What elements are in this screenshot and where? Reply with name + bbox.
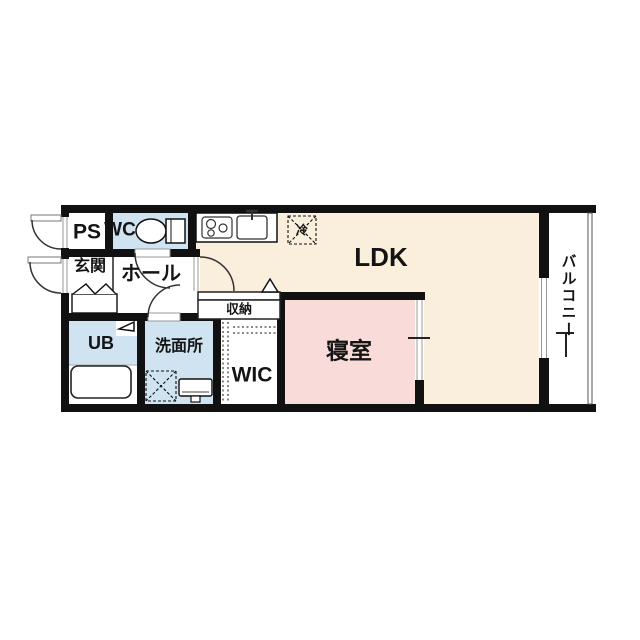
ldk-door-opening [192,257,200,291]
toilet-bowl [136,219,166,243]
room-label-ldk: LDK [354,244,407,270]
window-opening [539,278,549,358]
ps-door-opening [61,217,69,248]
room-label-unit-bath: UB [88,334,114,352]
room-label-entrance: 玄関 [74,259,106,275]
wall-segment [61,213,69,217]
washroom-door-opening [148,313,180,321]
sliding-door-opening [415,300,424,380]
room-label-wc: WC [104,221,136,240]
room-label-bedroom: 寝室 [326,340,372,363]
entrance-door-leaf [28,257,61,263]
wall-segment [539,358,549,404]
room-label-balcony: バルコニー [561,254,576,339]
wall-segment [61,205,596,213]
wall-segment [61,293,69,404]
wc-door-opening [135,249,170,257]
toilet-tank [166,219,185,243]
washbasin-top [179,379,212,396]
entrance-door-opening [61,259,69,293]
wall-segment [188,213,196,249]
wall-segment [137,313,145,404]
room-label-ps: PS [73,222,101,243]
wall-segment [415,380,424,404]
room-label-hall: ホール [121,264,181,284]
room-label-wic: WIC [232,365,273,386]
wall-segment [277,292,425,300]
wic-hanger-icon [223,322,276,402]
ps-door [31,215,69,249]
balcony-railing [588,213,592,404]
wall-segment [213,313,221,404]
wall-segment [192,249,200,257]
ps-door-arc [32,220,61,249]
room-label-storage: 収納 [226,303,252,316]
ps-door-leaf [31,215,61,221]
entrance-door [28,257,69,293]
washroom-door [148,285,180,321]
washroom-door-arc [148,285,180,317]
unit-bath-door [116,321,137,336]
room-label-washroom: 洗面所 [155,339,203,355]
floor-plan: PS WC 玄関 ホール UB 洗面所 収納 WIC 寝室 LDK バルコニー … [0,0,640,640]
wall-segment [539,205,549,278]
shoe-cabinet-top [73,284,116,294]
floor-plan-drawing [0,0,640,640]
shoe-cabinet-icon [72,284,117,313]
wall-segment [61,404,596,412]
washbasin-stand [191,396,200,402]
wall-segment [61,313,148,321]
ldk-area-south [424,292,539,404]
kitchen-counter [196,211,277,242]
storage-door-track [198,292,280,300]
entrance-door-arc [30,262,61,293]
wall-segment [61,249,135,257]
shoe-cabinet-body [72,294,117,313]
bathtub-icon [71,366,131,398]
refrigerator-label: 冷 [296,224,308,236]
toilet-icon [136,219,185,243]
